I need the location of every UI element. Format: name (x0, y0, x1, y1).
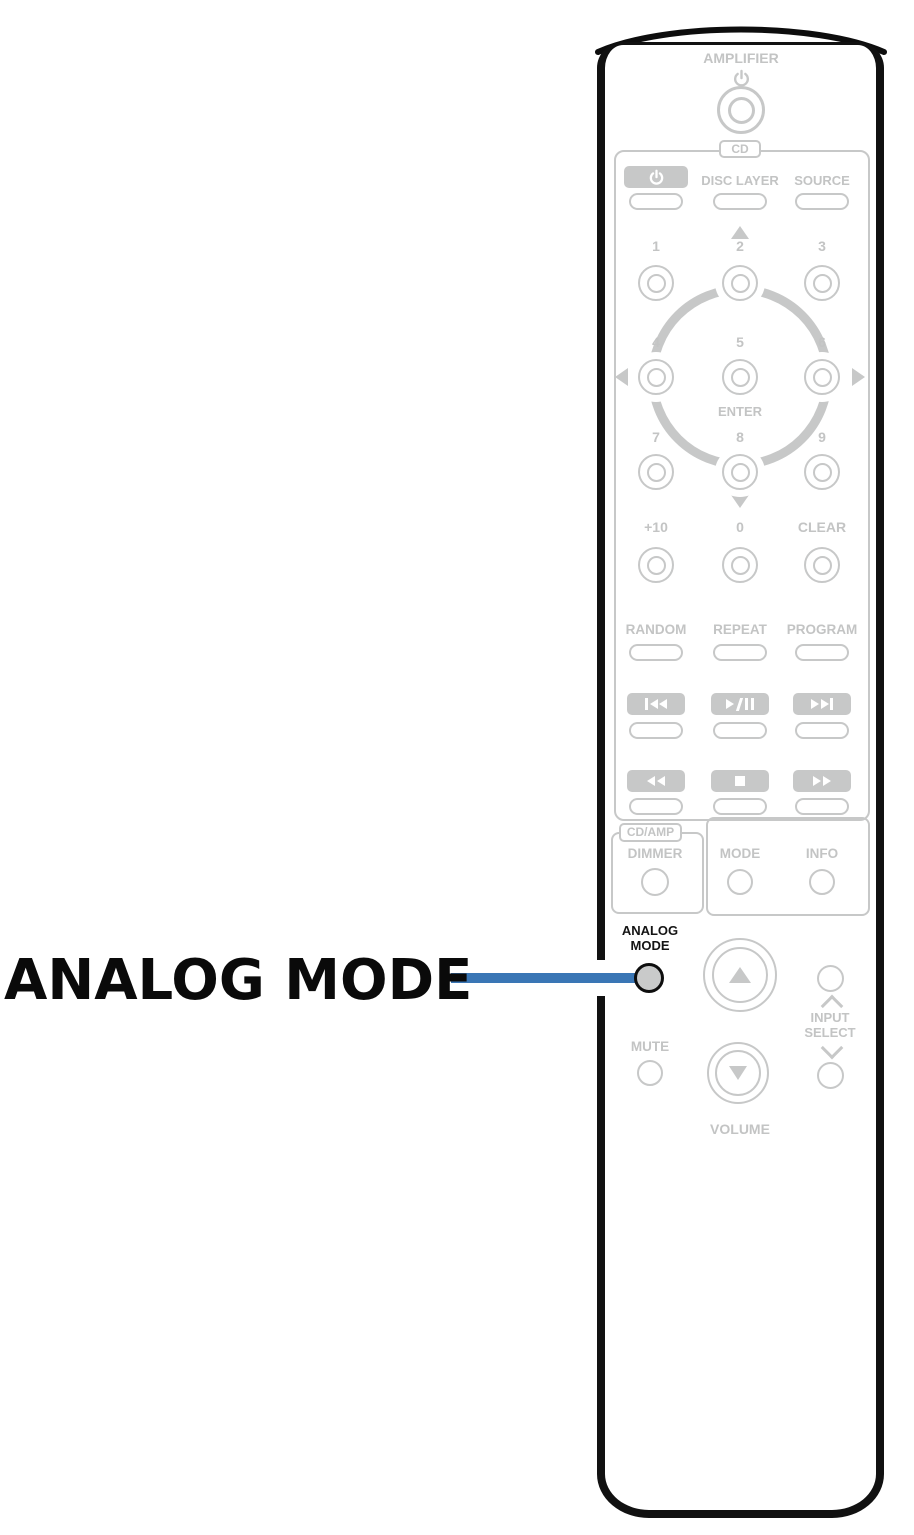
cd-amp-tag: CD/AMP (619, 823, 682, 842)
digit-4-button-inner-ring (647, 368, 666, 387)
amplifier-label: AMPLIFIER (698, 50, 784, 66)
digit-6-button-inner-ring (813, 368, 832, 387)
digit-9-label: 9 (787, 429, 857, 445)
mode-label: MODE (698, 846, 782, 861)
disc-layer-button[interactable] (713, 193, 767, 210)
mode-button[interactable] (727, 869, 753, 895)
volume-up-button[interactable] (703, 938, 777, 1012)
source-label: SOURCE (780, 173, 864, 188)
left-arrow-icon (615, 368, 628, 386)
fast-forward-icon (813, 776, 821, 786)
digit-9-button-inner-ring (813, 463, 832, 482)
digit-1-button-inner-ring (647, 274, 666, 293)
digit-0-button-inner-ring (731, 556, 750, 575)
stop-button[interactable] (713, 798, 767, 815)
mode-info-box (706, 817, 870, 916)
info-button[interactable] (809, 869, 835, 895)
clear-button[interactable] (804, 547, 840, 583)
digit-2-button-inner-ring (731, 274, 750, 293)
play-pause-button[interactable] (713, 722, 767, 739)
amplifier-power-button-inner-ring (728, 97, 755, 124)
stop-key[interactable] (711, 770, 769, 792)
fast-forward-key[interactable] (793, 770, 851, 792)
digit-7-label: 7 (621, 429, 691, 445)
digit-1-label: 1 (621, 238, 691, 254)
dimmer-label: DIMMER (613, 846, 697, 861)
digit-8-label: 8 (705, 429, 775, 445)
skip-back-key[interactable] (627, 693, 685, 715)
down-arrow-icon (731, 495, 749, 508)
digit-8-button[interactable] (722, 454, 758, 490)
rewind-key[interactable] (627, 770, 685, 792)
repeat-button[interactable] (713, 644, 767, 661)
digit-7-button-inner-ring (647, 463, 666, 482)
digit-0-button[interactable] (722, 547, 758, 583)
input-label: INPUT (795, 1010, 865, 1025)
play-pause-key[interactable] (711, 693, 769, 715)
skip-forward-icon (811, 699, 819, 709)
callout-analog-mode-label: ANALOG MODE (4, 948, 464, 1013)
info-label: INFO (780, 846, 864, 861)
cd-group-tag: CD (719, 140, 761, 158)
analog-mode-label: ANALOG MODE (610, 923, 690, 953)
mute-label: MUTE (613, 1039, 687, 1054)
volume-up-button-inner-ring (712, 947, 768, 1003)
input-select-up-button[interactable] (817, 965, 844, 992)
fast-forward-button[interactable] (795, 798, 849, 815)
skip-back-button[interactable] (629, 722, 683, 739)
analog-mode-button[interactable] (634, 963, 664, 993)
digit-8-button-inner-ring (731, 463, 750, 482)
digit-0-label: 0 (705, 519, 775, 535)
right-arrow-icon (852, 368, 865, 386)
rewind-icon (647, 776, 655, 786)
digit-5-button-inner-ring (731, 368, 750, 387)
cd-power-button[interactable] (629, 193, 683, 210)
volume-down-button-inner-ring (715, 1050, 761, 1096)
dimmer-button[interactable] (641, 868, 669, 896)
disc-layer-label: DISC LAYER (698, 173, 782, 188)
digit-5-label: 5 (705, 334, 775, 350)
volume-up-icon (729, 967, 751, 983)
stop-icon (735, 776, 745, 786)
mute-button[interactable] (637, 1060, 663, 1086)
rewind-button[interactable] (629, 798, 683, 815)
digit-9-button[interactable] (804, 454, 840, 490)
source-button[interactable] (795, 193, 849, 210)
program-button[interactable] (795, 644, 849, 661)
digit-3-button-inner-ring (813, 274, 832, 293)
input-select-down-button[interactable] (817, 1062, 844, 1089)
page: AMPLIFIER CD DISC LAYER SOURCE 1 2 3 4 5… (0, 0, 914, 1535)
enter-label: ENTER (705, 404, 775, 419)
random-button[interactable] (629, 644, 683, 661)
digit-4-label: 4 (621, 334, 691, 350)
digit-6-button[interactable] (804, 359, 840, 395)
repeat-label: REPEAT (698, 622, 782, 637)
skip-forward-key[interactable] (793, 693, 851, 715)
callout-line (451, 973, 639, 983)
clear-label: CLEAR (787, 519, 857, 535)
plus10-button[interactable] (638, 547, 674, 583)
digit-1-button[interactable] (638, 265, 674, 301)
volume-down-icon (729, 1066, 747, 1080)
amplifier-power-button[interactable] (717, 86, 765, 134)
plus10-button-inner-ring (647, 556, 666, 575)
skip-back-icon (645, 698, 648, 710)
play-pause-icon (726, 699, 734, 709)
digit-2-button[interactable] (722, 265, 758, 301)
program-label: PROGRAM (780, 622, 864, 637)
digit-3-label: 3 (787, 238, 857, 254)
digit-5-button[interactable] (722, 359, 758, 395)
power-icon (648, 169, 665, 186)
clear-button-inner-ring (813, 556, 832, 575)
digit-3-button[interactable] (804, 265, 840, 301)
volume-down-button[interactable] (707, 1042, 769, 1104)
digit-6-label: 6 (787, 334, 857, 350)
digit-2-label: 2 (705, 238, 775, 254)
cd-power-key[interactable] (624, 166, 688, 188)
random-label: RANDOM (614, 622, 698, 637)
plus10-label: +10 (621, 519, 691, 535)
volume-label: VOLUME (703, 1121, 777, 1137)
digit-4-button[interactable] (638, 359, 674, 395)
digit-7-button[interactable] (638, 454, 674, 490)
skip-forward-button[interactable] (795, 722, 849, 739)
